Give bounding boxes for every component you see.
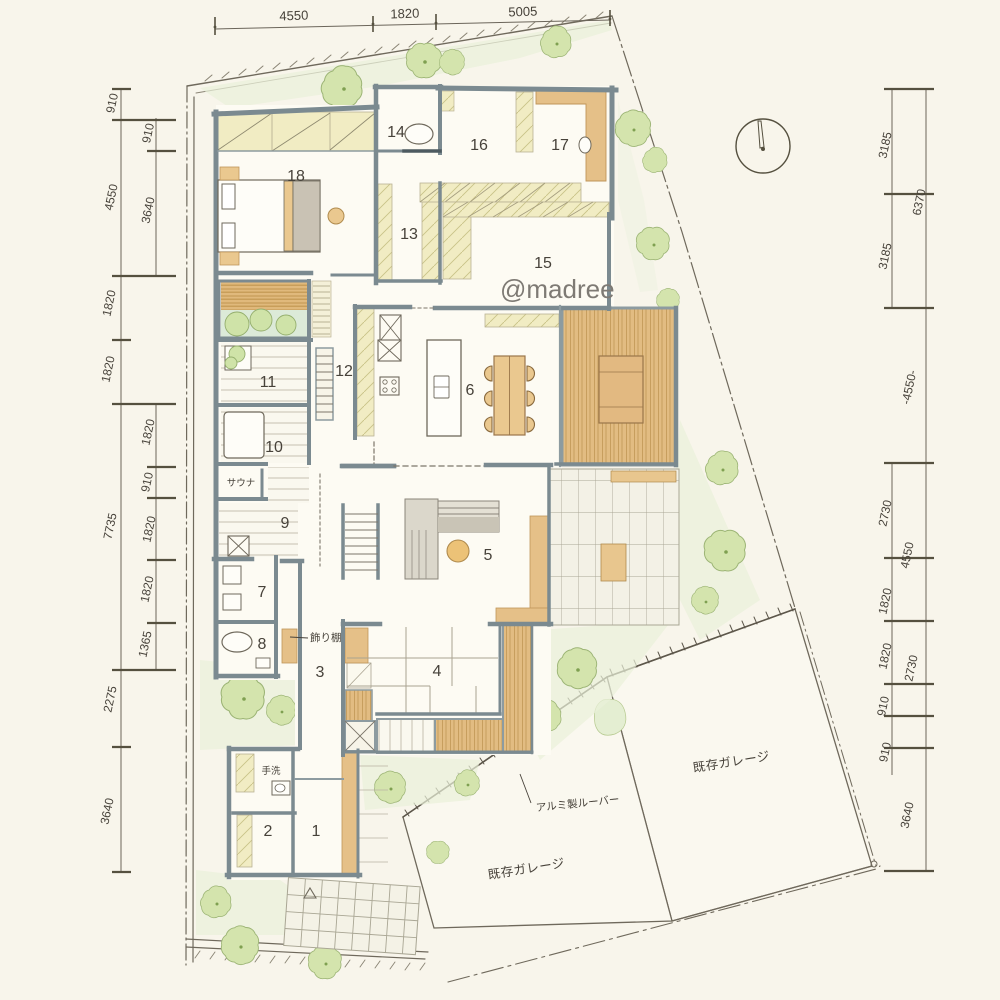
svg-text:13: 13 (400, 226, 418, 243)
svg-text:18: 18 (287, 168, 305, 185)
svg-text:11: 11 (260, 374, 277, 391)
svg-text:7: 7 (258, 584, 267, 601)
svg-text:15: 15 (534, 255, 552, 272)
svg-text:17: 17 (551, 137, 569, 154)
svg-text:手洗: 手洗 (261, 765, 281, 777)
svg-text:4550: 4550 (279, 8, 308, 24)
svg-text:4: 4 (433, 663, 442, 680)
svg-text:2: 2 (264, 823, 273, 840)
svg-text:@madree: @madree (500, 274, 615, 304)
svg-text:3: 3 (316, 664, 325, 681)
svg-text:16: 16 (470, 137, 488, 154)
svg-text:8: 8 (258, 636, 267, 653)
svg-text:12: 12 (335, 363, 353, 380)
svg-text:14: 14 (387, 124, 405, 141)
svg-text:サウナ: サウナ (227, 478, 256, 489)
svg-text:1820: 1820 (390, 6, 419, 22)
svg-text:6: 6 (466, 382, 475, 399)
svg-text:飾り棚: 飾り棚 (310, 631, 342, 644)
svg-text:5005: 5005 (508, 4, 537, 20)
svg-text:1: 1 (312, 823, 321, 840)
svg-text:9: 9 (281, 515, 290, 532)
svg-text:10: 10 (265, 439, 283, 456)
svg-text:5: 5 (484, 547, 493, 564)
